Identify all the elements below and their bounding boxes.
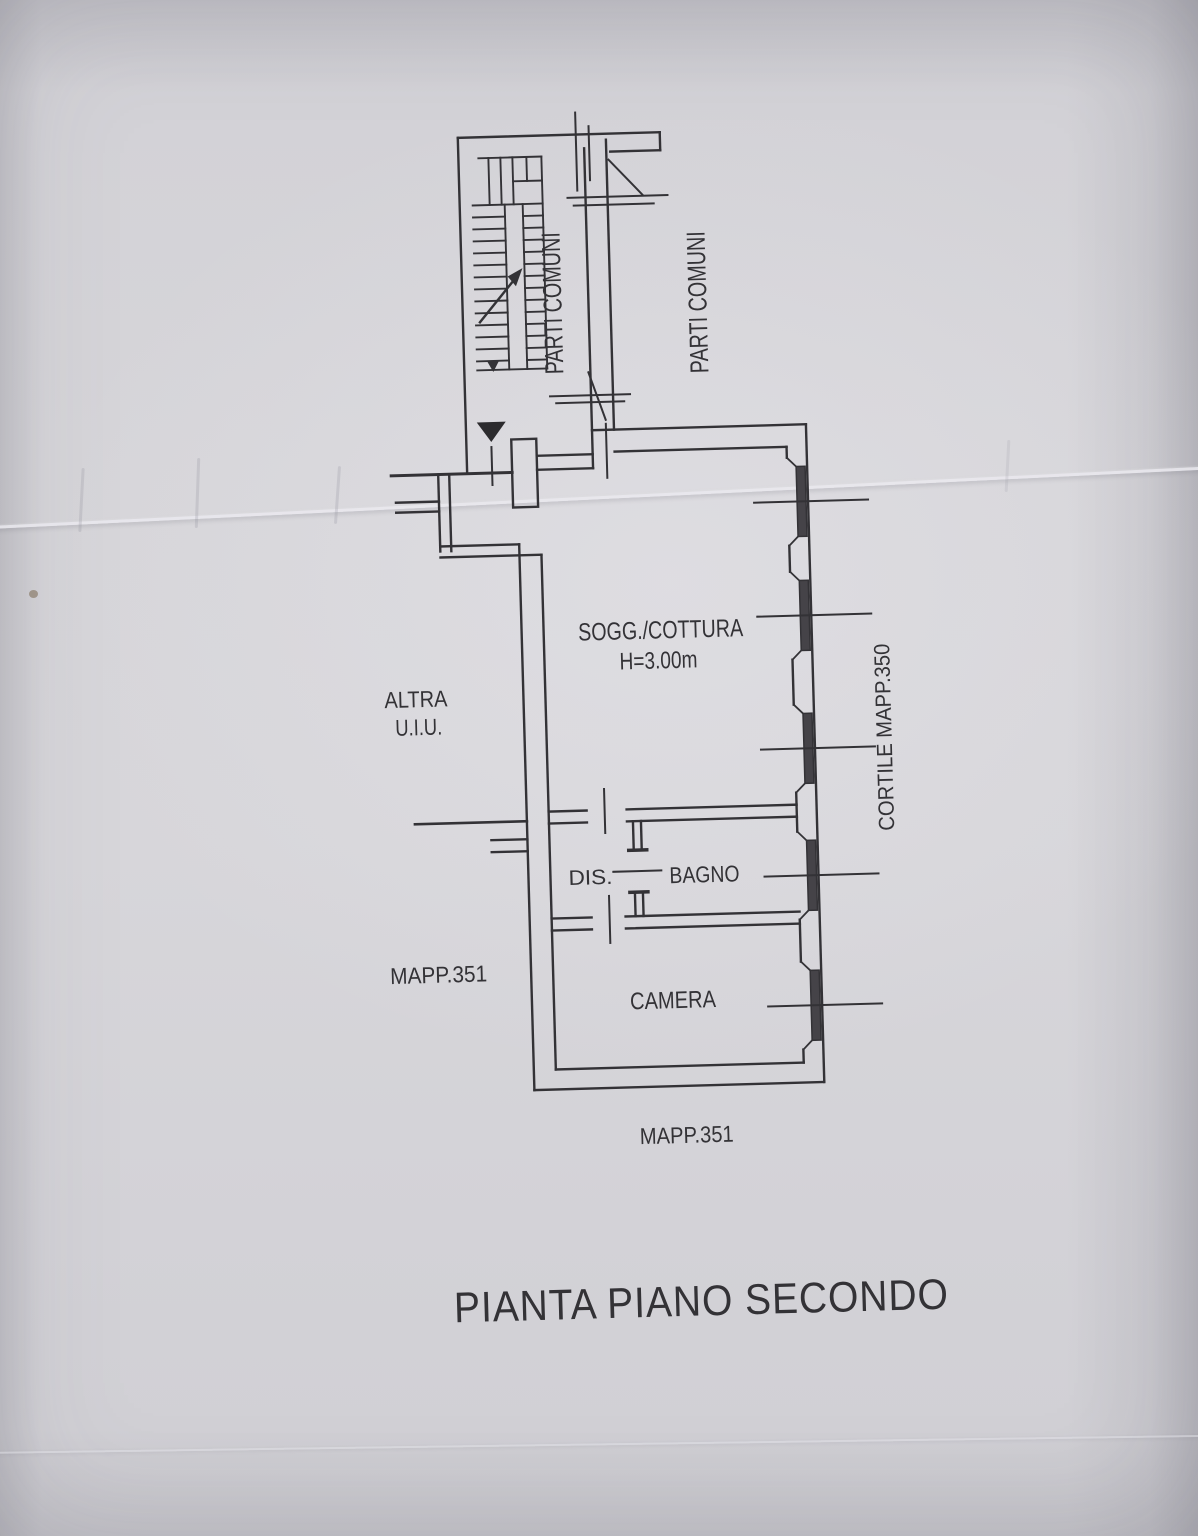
- label-parcel-bottom: MAPP.351: [639, 1121, 734, 1150]
- room-label-living-height: H=3.00m: [619, 646, 698, 675]
- stairwell-top-window: [575, 112, 590, 190]
- scanned-floor-plan-page: PARTI COMUNI PARTI COMUNI SOGG./COTTURA …: [0, 0, 1198, 1536]
- label-parti-comuni-landing: PARTI COMUNI: [680, 231, 714, 374]
- page-title: PIANTA PIANO SECONDO: [453, 1271, 949, 1333]
- entrance-arrow-icon: [477, 422, 507, 443]
- window-bathroom: [763, 829, 879, 920]
- room-label-hallway: DIS.: [568, 866, 613, 890]
- window-living-3: [760, 702, 876, 793]
- stairwell-side-window-upper: [568, 195, 668, 206]
- entry-wall-pier: [511, 439, 538, 508]
- floor-plan-drawing: PARTI COMUNI PARTI COMUNI SOGG./COTTURA …: [0, 0, 1198, 1536]
- room-label-bedroom: CAMERA: [630, 986, 717, 1015]
- entry-and-left-walls: [390, 419, 604, 854]
- label-parcel-left: MAPP.351: [390, 960, 488, 989]
- room-label-bathroom: BAGNO: [669, 860, 740, 888]
- label-altra-uiu-line1: ALTRA: [384, 685, 448, 713]
- label-altra-uiu-line2: U.I.U.: [395, 714, 443, 741]
- window-symbols: [753, 456, 883, 1051]
- window-living-1: [753, 456, 869, 547]
- window-living-2: [756, 570, 872, 661]
- label-courtyard-parcel: CORTILE MAPP.350: [869, 643, 899, 831]
- window-bedroom: [767, 959, 883, 1050]
- room-label-living-kitchen: SOGG./COTTURA: [578, 614, 744, 647]
- label-parti-comuni-stairwell: PARTI COMUNI: [535, 232, 569, 375]
